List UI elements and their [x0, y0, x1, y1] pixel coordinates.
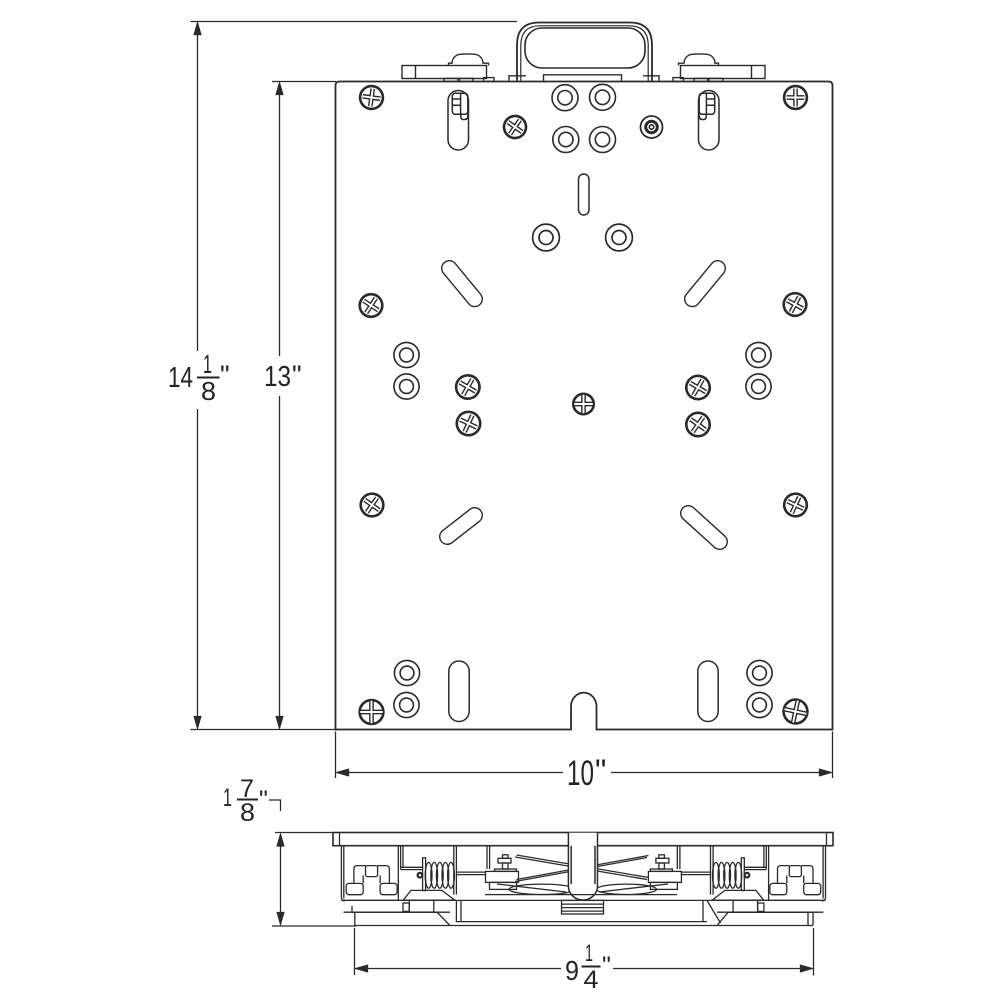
svg-text:": " — [259, 786, 268, 814]
svg-text:14: 14 — [168, 362, 193, 394]
svg-text:9: 9 — [565, 955, 579, 986]
svg-text:": " — [602, 952, 611, 980]
svg-text:4: 4 — [584, 966, 599, 994]
svg-text:8: 8 — [240, 799, 255, 827]
svg-text:1: 1 — [203, 349, 212, 379]
svg-text:1: 1 — [585, 940, 593, 967]
svg-text:1: 1 — [223, 784, 232, 812]
svg-text:10: 10 — [567, 754, 594, 793]
svg-text:": " — [292, 360, 302, 390]
svg-text:8: 8 — [201, 376, 216, 406]
svg-text:13: 13 — [264, 361, 291, 393]
svg-text:": " — [595, 753, 606, 789]
svg-text:": " — [220, 360, 230, 390]
